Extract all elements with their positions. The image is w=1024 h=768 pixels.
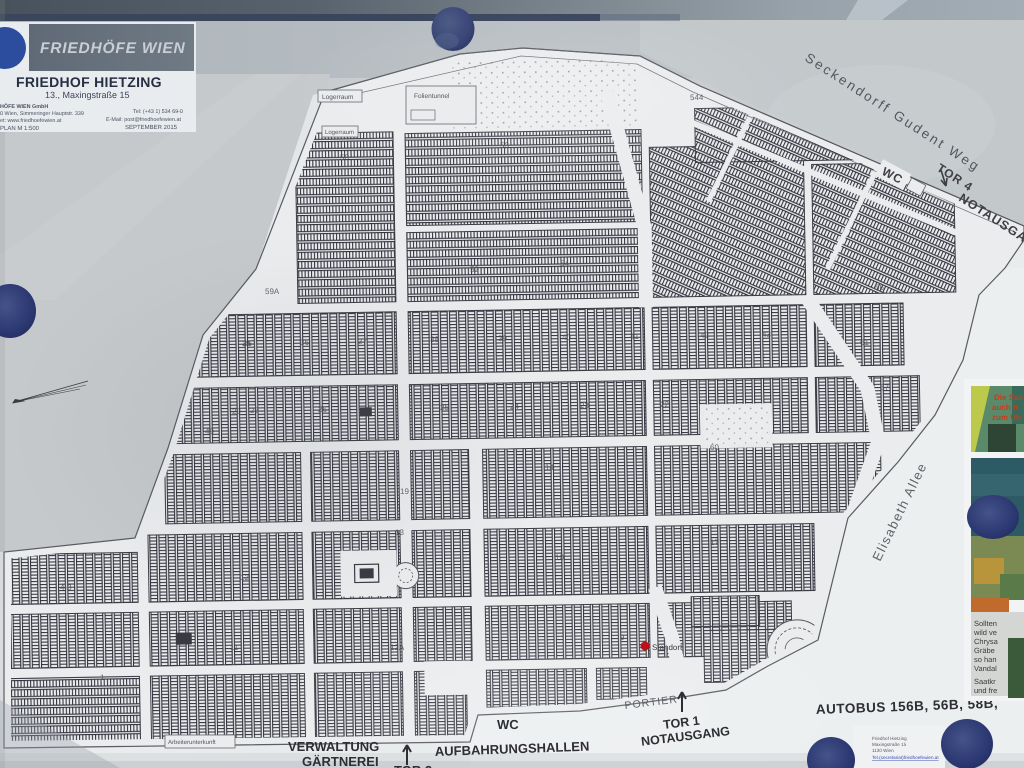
svg-text:1: 1: [100, 673, 105, 682]
svg-text:52: 52: [470, 265, 479, 274]
svg-text:zum Üb: zum Üb: [992, 413, 1021, 422]
svg-text:49: 49: [205, 427, 214, 436]
svg-text:Saatkr: Saatkr: [974, 677, 996, 686]
svg-text:24: 24: [510, 402, 519, 411]
svg-text:4-3: 4-3: [60, 583, 72, 592]
svg-text:54: 54: [560, 259, 569, 268]
svg-text:Arbeiterunterkunft: Arbeiterunterkunft: [168, 739, 216, 746]
svg-text:PLAN M 1:500: PLAN M 1:500: [0, 125, 40, 132]
svg-text:0 Wien, Simmeringer Hauptstr.: 0 Wien, Simmeringer Hauptstr. 339: [0, 111, 84, 117]
svg-text:SEPTEMBER 2015: SEPTEMBER 2015: [125, 124, 178, 131]
svg-text:Logerraum: Logerraum: [322, 94, 353, 101]
svg-text:Gräbe: Gräbe: [974, 646, 995, 655]
svg-text:Vandal: Vandal: [974, 664, 997, 673]
svg-text:27: 27: [250, 406, 259, 415]
svg-text:14: 14: [545, 463, 554, 472]
svg-text:13., Maxingstraße 15: 13., Maxingstraße 15: [45, 90, 130, 100]
svg-text:Logerraum: Logerraum: [325, 129, 354, 136]
svg-text:Sollten: Sollten: [974, 619, 997, 628]
svg-text:544: 544: [690, 93, 704, 102]
svg-text:57: 57: [880, 383, 889, 392]
svg-text:WC: WC: [497, 717, 519, 732]
svg-text:41: 41: [630, 332, 639, 341]
svg-text:13: 13: [395, 528, 404, 537]
svg-text:E-Mail: post@friedhoefewien.at: E-Mail: post@friedhoefewien.at: [106, 117, 181, 123]
svg-text:43: 43: [762, 330, 771, 339]
svg-text:Standort: Standort: [652, 643, 683, 652]
svg-text:53: 53: [500, 141, 509, 150]
svg-text:Folientunnel: Folientunnel: [414, 93, 450, 100]
svg-text:42: 42: [700, 331, 709, 340]
svg-text:und fre: und fre: [974, 686, 997, 695]
svg-text:Chrysa: Chrysa: [974, 637, 999, 646]
svg-text:35: 35: [243, 339, 252, 348]
svg-text:38: 38: [430, 335, 439, 344]
svg-text:VERWALTUNG: VERWALTUNG: [288, 739, 379, 754]
svg-text:TOR 2: TOR 2: [394, 763, 432, 768]
svg-text:50: 50: [340, 153, 349, 162]
svg-text:59A: 59A: [265, 287, 280, 296]
svg-text:1130 Wien: 1130 Wien: [872, 748, 894, 753]
svg-text:Tel: (+43 1) 534 69-0: Tel: (+43 1) 534 69-0: [133, 109, 183, 115]
svg-text:FRIEDHÖFE WIEN: FRIEDHÖFE WIEN: [40, 39, 186, 57]
svg-text:10: 10: [555, 553, 564, 562]
svg-text:Die Saa: Die Saa: [994, 393, 1023, 402]
svg-text:Maxingstraße 15: Maxingstraße 15: [872, 742, 907, 747]
svg-text:39: 39: [498, 334, 507, 343]
svg-text:GÄRTNEREI: GÄRTNEREI: [302, 754, 379, 768]
svg-text:37: 37: [358, 337, 367, 346]
svg-text:56: 56: [875, 283, 884, 292]
svg-text:61: 61: [860, 338, 869, 347]
svg-text:12A: 12A: [390, 643, 405, 652]
svg-text:et: www.friedhoefewien.at: et: www.friedhoefewien.at: [0, 118, 62, 124]
svg-text:22: 22: [660, 400, 669, 409]
svg-text:so han: so han: [974, 655, 997, 664]
svg-text:Friedhof Hietzing: Friedhof Hietzing: [872, 736, 907, 741]
svg-text:FRIEDHOF HIETZING: FRIEDHOF HIETZING: [16, 74, 162, 90]
svg-text:60: 60: [710, 443, 719, 452]
svg-text:11: 11: [230, 643, 239, 652]
svg-text:HÖFE WIEN GmbH: HÖFE WIEN GmbH: [0, 103, 48, 110]
svg-text:Tel.(secretariat)friedhoefewie: Tel.(secretariat)friedhoefewien.at: [872, 755, 939, 760]
svg-text:19: 19: [400, 487, 409, 496]
svg-text:26: 26: [318, 405, 327, 414]
svg-text:40: 40: [562, 333, 571, 342]
svg-text:29: 29: [232, 407, 241, 416]
svg-text:auch h: auch h: [992, 403, 1018, 412]
svg-text:wild ve: wild ve: [973, 628, 997, 637]
svg-text:23: 23: [580, 401, 589, 410]
svg-text:9: 9: [620, 633, 625, 642]
svg-text:12: 12: [240, 573, 249, 582]
svg-text:36: 36: [300, 338, 309, 347]
svg-text:25: 25: [440, 403, 449, 412]
svg-text:17: 17: [710, 538, 719, 547]
